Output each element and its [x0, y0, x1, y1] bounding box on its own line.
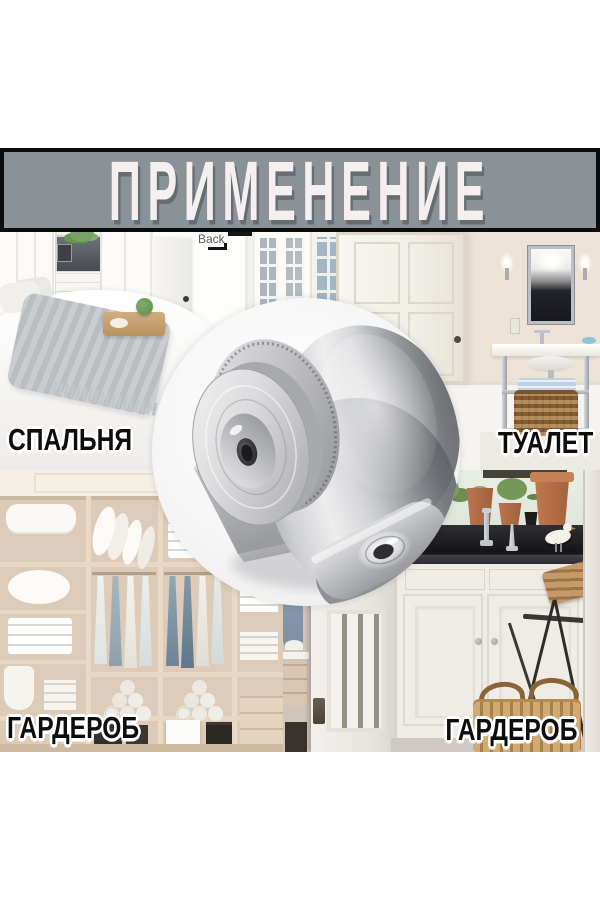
shelf-divider	[86, 496, 91, 744]
sconce-right-icon	[583, 268, 587, 280]
label-toilet: ТУАЛЕТ	[498, 427, 593, 462]
rolled-towels-pyramid	[176, 706, 191, 721]
outlet	[510, 318, 520, 334]
label-bedroom: СПАЛЬНЯ	[8, 424, 132, 459]
black-pot	[524, 512, 538, 526]
product-photo-circle	[152, 298, 460, 606]
cabinet-door-panel	[415, 606, 475, 718]
banner-title: ПРИМЕНЕНИЕ	[109, 141, 491, 239]
plant-foliage	[497, 478, 527, 500]
magnetic-door-stopper-icon	[152, 298, 460, 606]
door-panel	[354, 242, 400, 304]
storage-box-white	[166, 720, 200, 746]
hanging-shirt	[181, 576, 194, 668]
closet-shelf	[283, 652, 309, 659]
door-knob-icon	[183, 296, 189, 302]
hanging-shirt	[166, 576, 179, 666]
application-banner: ПРИМЕНЕНИЕ	[0, 148, 600, 232]
green-mug-icon	[136, 298, 153, 315]
hanging-shirt	[196, 576, 209, 666]
faucet-base	[480, 540, 493, 546]
soap-dish	[582, 337, 596, 344]
closet-drawers	[283, 662, 307, 706]
hanging-shirt	[211, 576, 224, 664]
label-kitchen: ГАРДЕРОБ	[445, 714, 577, 749]
pillows-row	[88, 504, 120, 557]
door-latch-icon	[313, 698, 325, 724]
cabinet-knob-icon	[475, 638, 482, 645]
back-sign-text: Back	[198, 232, 225, 246]
sink-counter	[492, 344, 600, 356]
closet-rod	[92, 572, 156, 575]
pot-rim	[530, 472, 574, 482]
bird-figurine-head	[563, 523, 572, 532]
stacked-bowls	[285, 640, 303, 650]
door-frame-right	[583, 470, 600, 752]
terracotta-pot-large	[533, 478, 571, 526]
shelf	[86, 672, 283, 677]
back-sign: Back	[198, 232, 238, 246]
dark-box	[285, 722, 307, 752]
door-slats	[327, 610, 385, 732]
console-leg-left	[502, 356, 507, 434]
candlestick-base	[506, 546, 518, 551]
linen-stack	[8, 618, 72, 654]
linen-stack	[44, 680, 76, 710]
mirror-light-reflection	[534, 249, 568, 273]
cabinet-knob-icon	[491, 638, 498, 645]
door-panel	[408, 242, 454, 304]
shelf-divider	[158, 496, 163, 744]
counter-edge	[411, 555, 586, 564]
label-wardrobe: ГАРДЕРОБ	[7, 712, 139, 747]
pillow	[8, 570, 70, 604]
shelf	[0, 610, 86, 614]
console-leg-right	[584, 356, 589, 434]
pillow	[6, 504, 76, 532]
hanging-shirt	[109, 576, 122, 666]
hanging-shirt	[124, 576, 137, 668]
sconce-left-icon	[505, 268, 509, 280]
faucet-handles	[534, 330, 550, 333]
tray-plate	[110, 318, 128, 328]
faucet-top	[482, 508, 491, 513]
hanging-shirt	[94, 576, 107, 664]
drawer-unit	[240, 696, 283, 744]
towel-stack	[240, 632, 278, 660]
hanging-garment	[4, 666, 34, 710]
cabinet-drawer	[405, 569, 485, 590]
photo-frame	[57, 244, 72, 262]
hanging-shirt	[139, 576, 152, 666]
shelf	[0, 660, 86, 664]
product-infographic: ПРИМЕНЕНИЕ Back	[0, 0, 600, 900]
bird-legs	[555, 543, 557, 552]
door-knob-icon	[454, 336, 461, 343]
